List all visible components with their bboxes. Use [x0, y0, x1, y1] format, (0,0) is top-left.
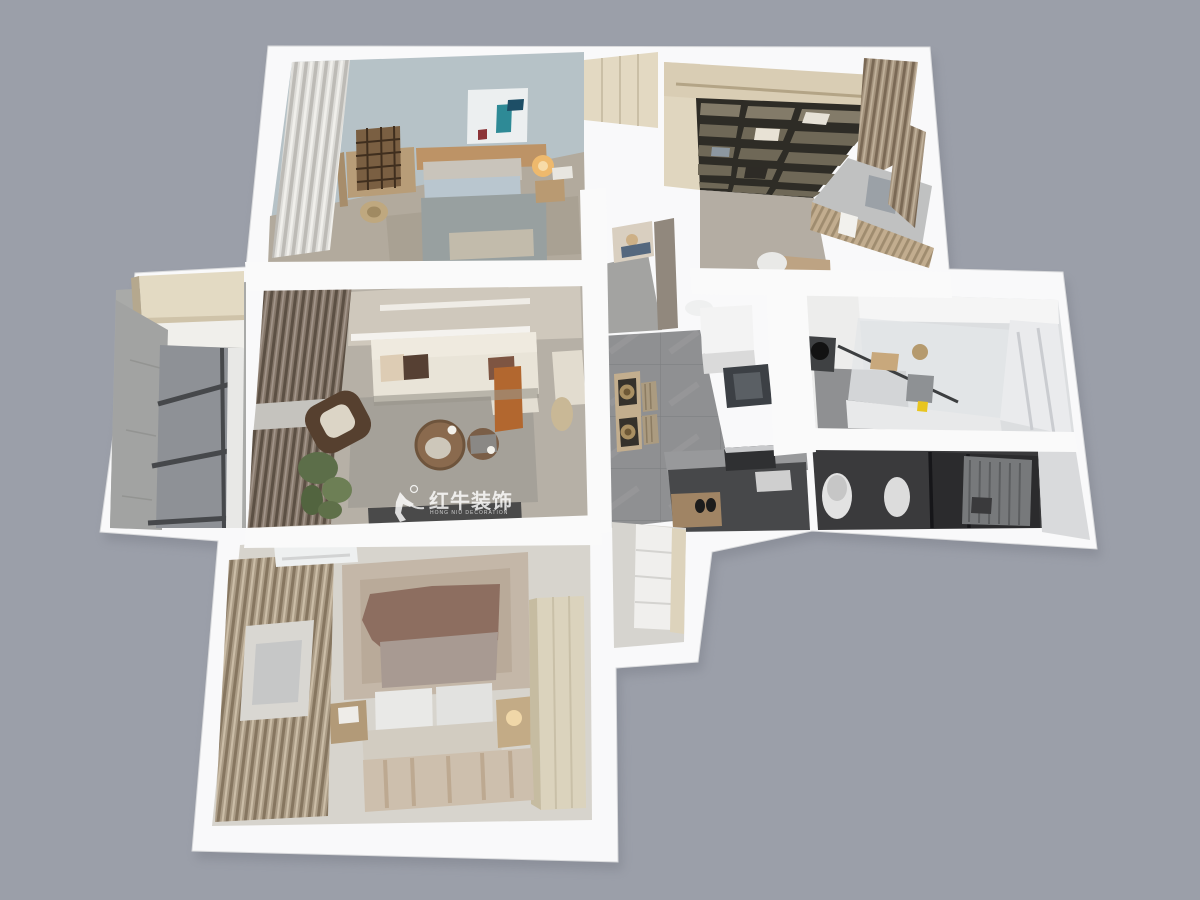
svg-text:HONG NIU DECORATION: HONG NIU DECORATION [430, 510, 508, 516]
